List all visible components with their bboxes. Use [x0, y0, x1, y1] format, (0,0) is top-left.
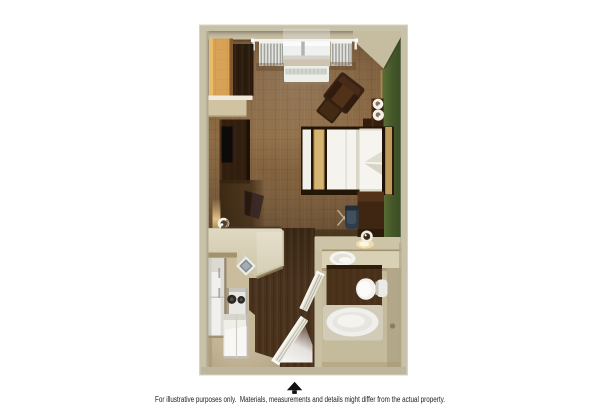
- svg-text:For illustrative purposes only: For illustrative purposes only. Material…: [155, 395, 445, 404]
